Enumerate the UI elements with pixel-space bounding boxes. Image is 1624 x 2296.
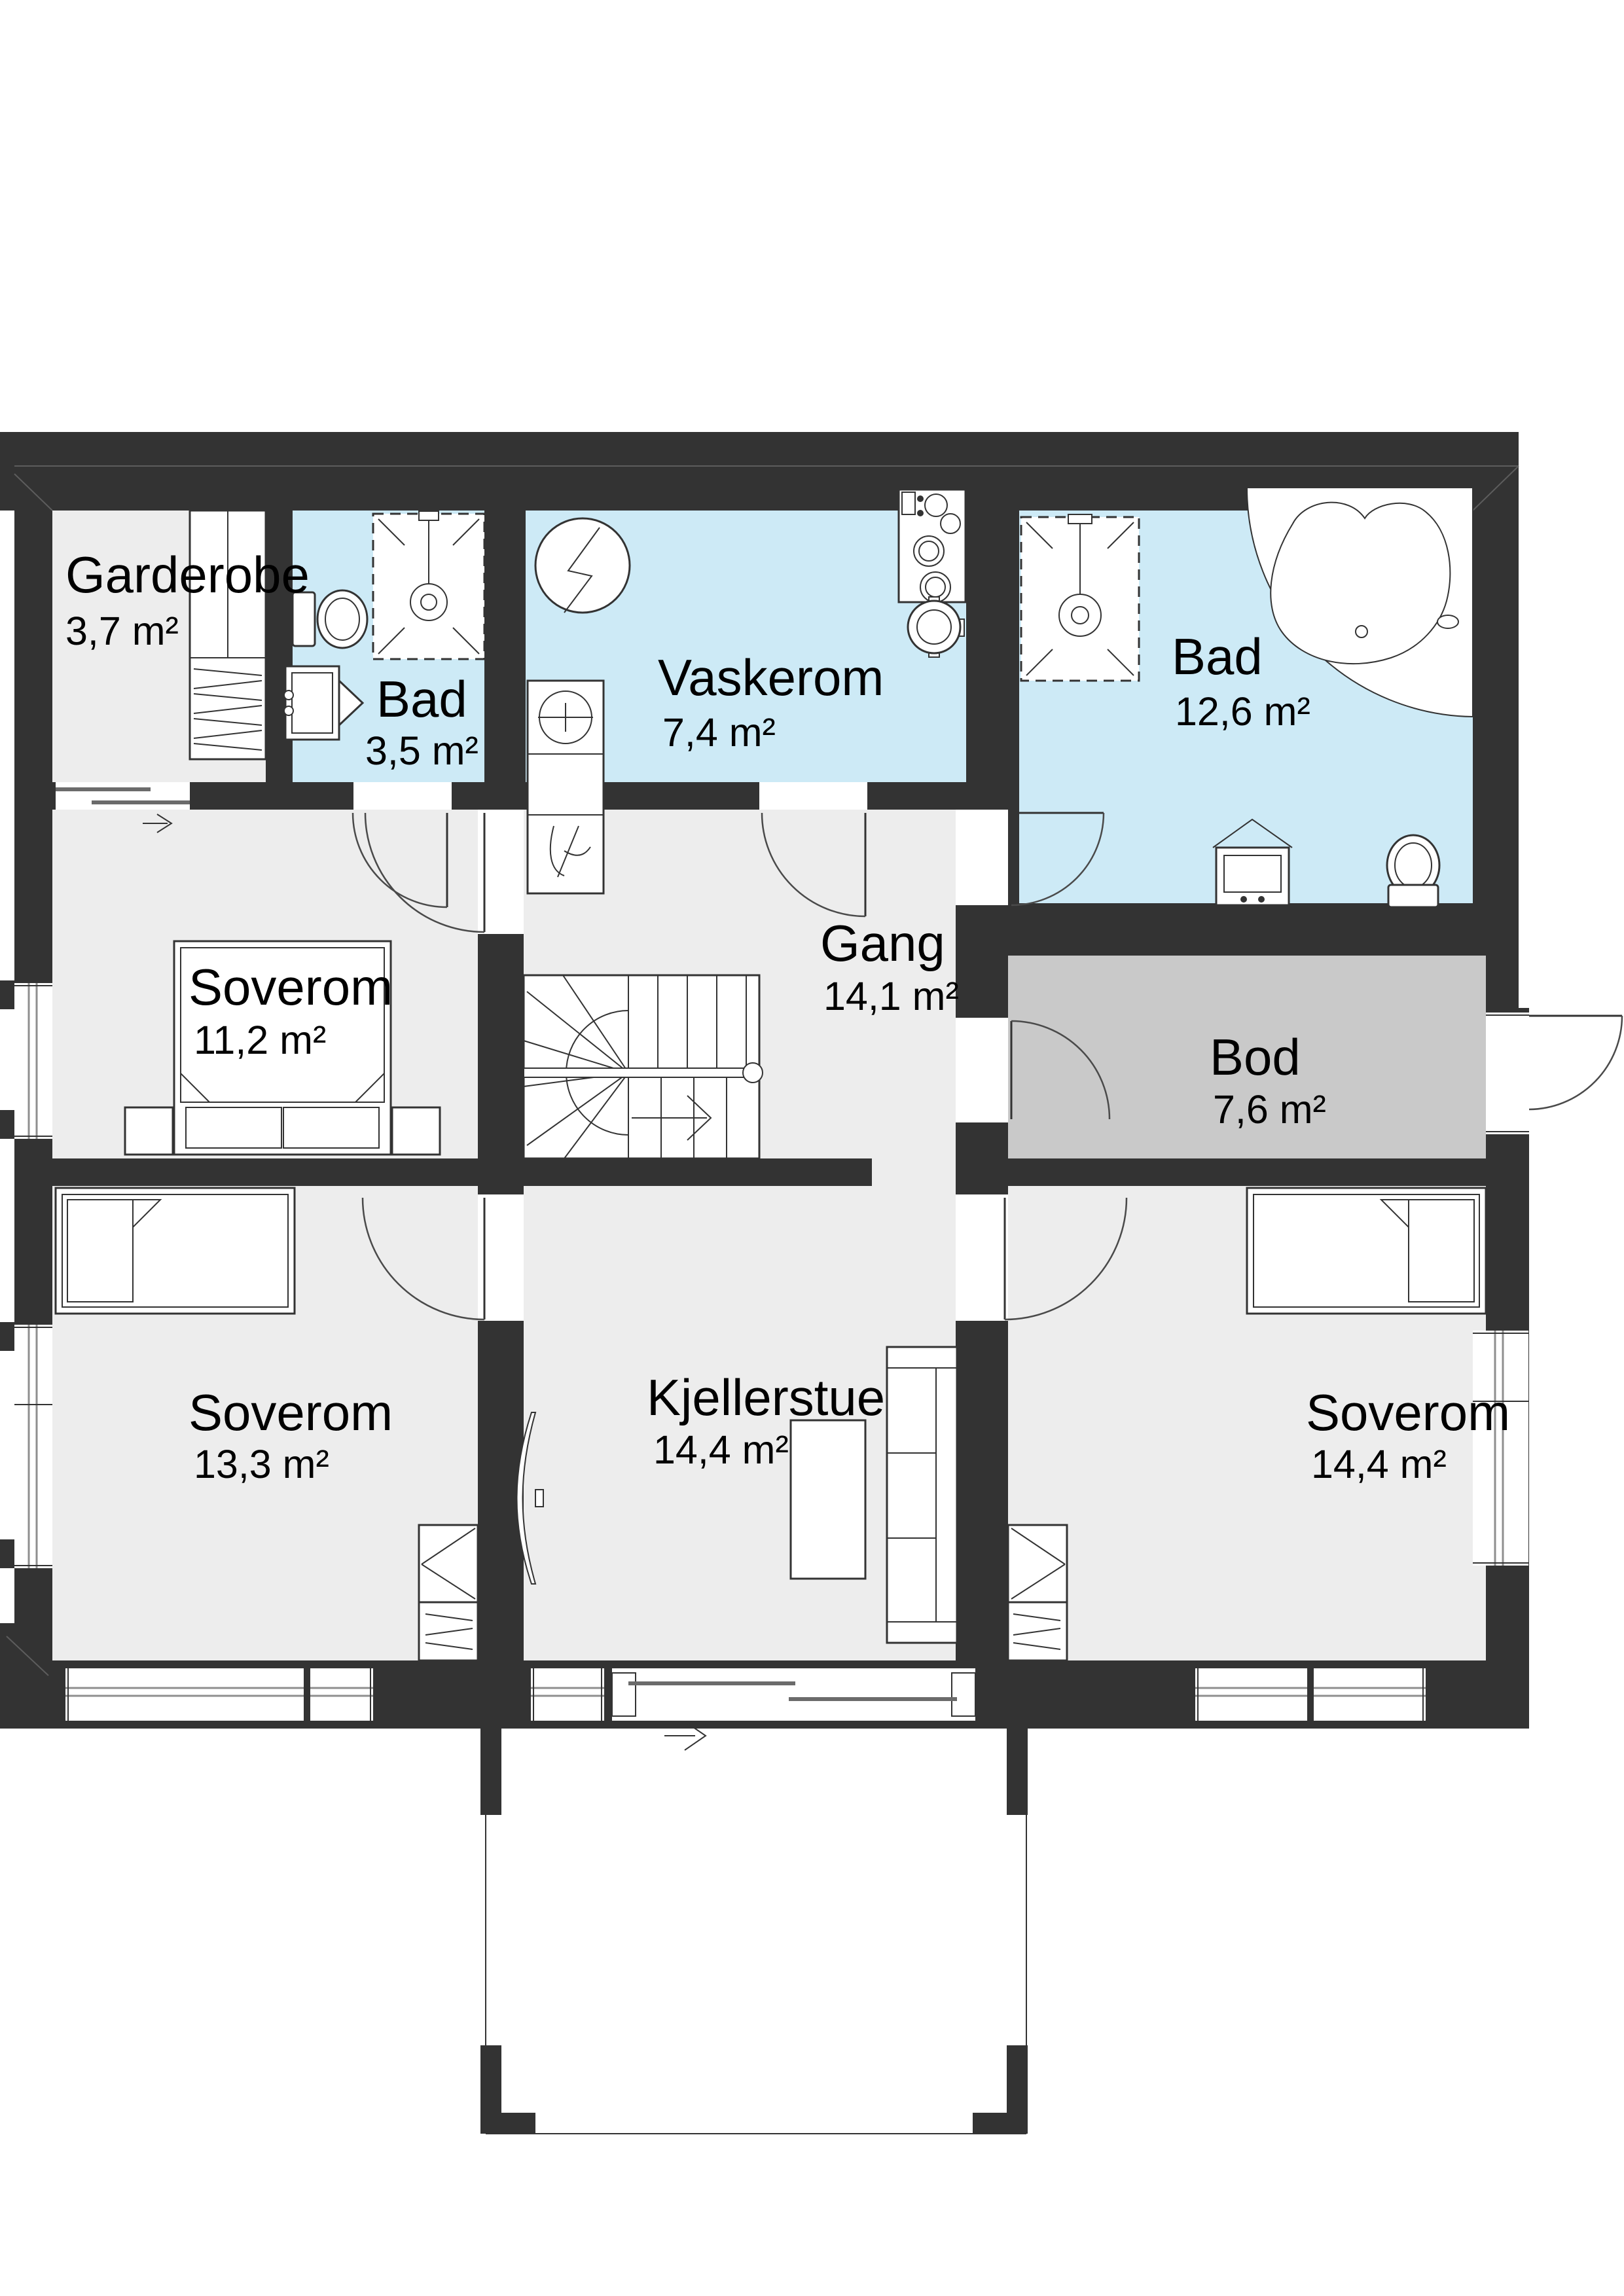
pilaster [0, 1539, 14, 1568]
water-heater-icon [535, 518, 630, 613]
shower-cabin-icon [373, 511, 484, 659]
area-soverom-1: 11,2 m² [194, 1018, 326, 1062]
pilaster [0, 1322, 14, 1351]
wardrobe-icon [1008, 1525, 1067, 1660]
label-soverom-2: Soverom [189, 1384, 393, 1441]
bath-faucet-icon [1437, 615, 1458, 628]
gang-passage [872, 1158, 956, 1186]
window-soverom-3-bottom [1195, 1668, 1426, 1721]
basement-floor-plan: Garderobe 3,7 m² Bad 3,5 m² Vaskerom 7,4… [0, 0, 1624, 2296]
area-kjellerstue: 14,4 m² [653, 1427, 789, 1472]
label-gang: Gang [820, 914, 945, 972]
terrace [480, 1729, 1028, 2134]
window-soverom-2-bottom [65, 1668, 373, 1721]
area-bad-small: 3,5 m² [365, 728, 478, 773]
area-bod: 7,6 m² [1213, 1087, 1326, 1132]
washer-dryer-counter-icon [899, 490, 965, 602]
label-garderobe: Garderobe [65, 546, 310, 603]
label-kjellerstue: Kjellerstue [647, 1369, 885, 1426]
area-vaskerom: 7,4 m² [662, 710, 776, 755]
pilaster [0, 1110, 14, 1139]
label-bad-large: Bad [1172, 628, 1263, 685]
single-bed-icon [56, 1188, 295, 1314]
nightstand [392, 1107, 440, 1155]
window-soverom-1 [14, 983, 52, 1139]
shower-cabin-icon [1021, 514, 1139, 681]
label-bod: Bod [1210, 1028, 1301, 1086]
window-soverom-3-right [1473, 1331, 1528, 1566]
wardrobe-icon [419, 1525, 478, 1660]
terrace-corner-post [480, 2045, 535, 2134]
area-gang: 14,1 m² [823, 974, 959, 1018]
pilaster [0, 980, 14, 1009]
utility-sink-bench-icon [528, 681, 604, 893]
staircase [524, 975, 763, 1158]
newel-post [743, 1063, 763, 1083]
area-soverom-3: 14,4 m² [1311, 1442, 1447, 1486]
label-soverom-1: Soverom [189, 958, 393, 1016]
pilaster [0, 432, 14, 511]
area-soverom-2: 13,3 m² [194, 1442, 329, 1486]
corner-pilaster [0, 1623, 51, 1729]
coffee-table [791, 1420, 865, 1579]
label-vaskerom: Vaskerom [658, 649, 884, 706]
window-kjellerstue-small [531, 1668, 604, 1721]
terrace-post [480, 1729, 501, 1815]
area-garderobe: 3,7 m² [65, 609, 179, 653]
door-bod-exterior [1486, 1013, 1622, 1134]
terrace-corner-post [973, 2045, 1028, 2134]
sofa-icon [887, 1347, 957, 1643]
sliding-door-kjellerstue [612, 1668, 975, 1721]
label-soverom-3: Soverom [1306, 1384, 1510, 1441]
toilet-icon [1387, 835, 1439, 907]
single-bed-icon [1247, 1188, 1486, 1314]
label-bad-small: Bad [376, 670, 467, 728]
area-bad-large: 12,6 m² [1175, 689, 1310, 734]
terrace-post [1007, 1729, 1028, 1815]
sliding-door-garderobe [56, 782, 190, 810]
nightstand [125, 1107, 173, 1155]
window-soverom-2-left [14, 1325, 52, 1568]
